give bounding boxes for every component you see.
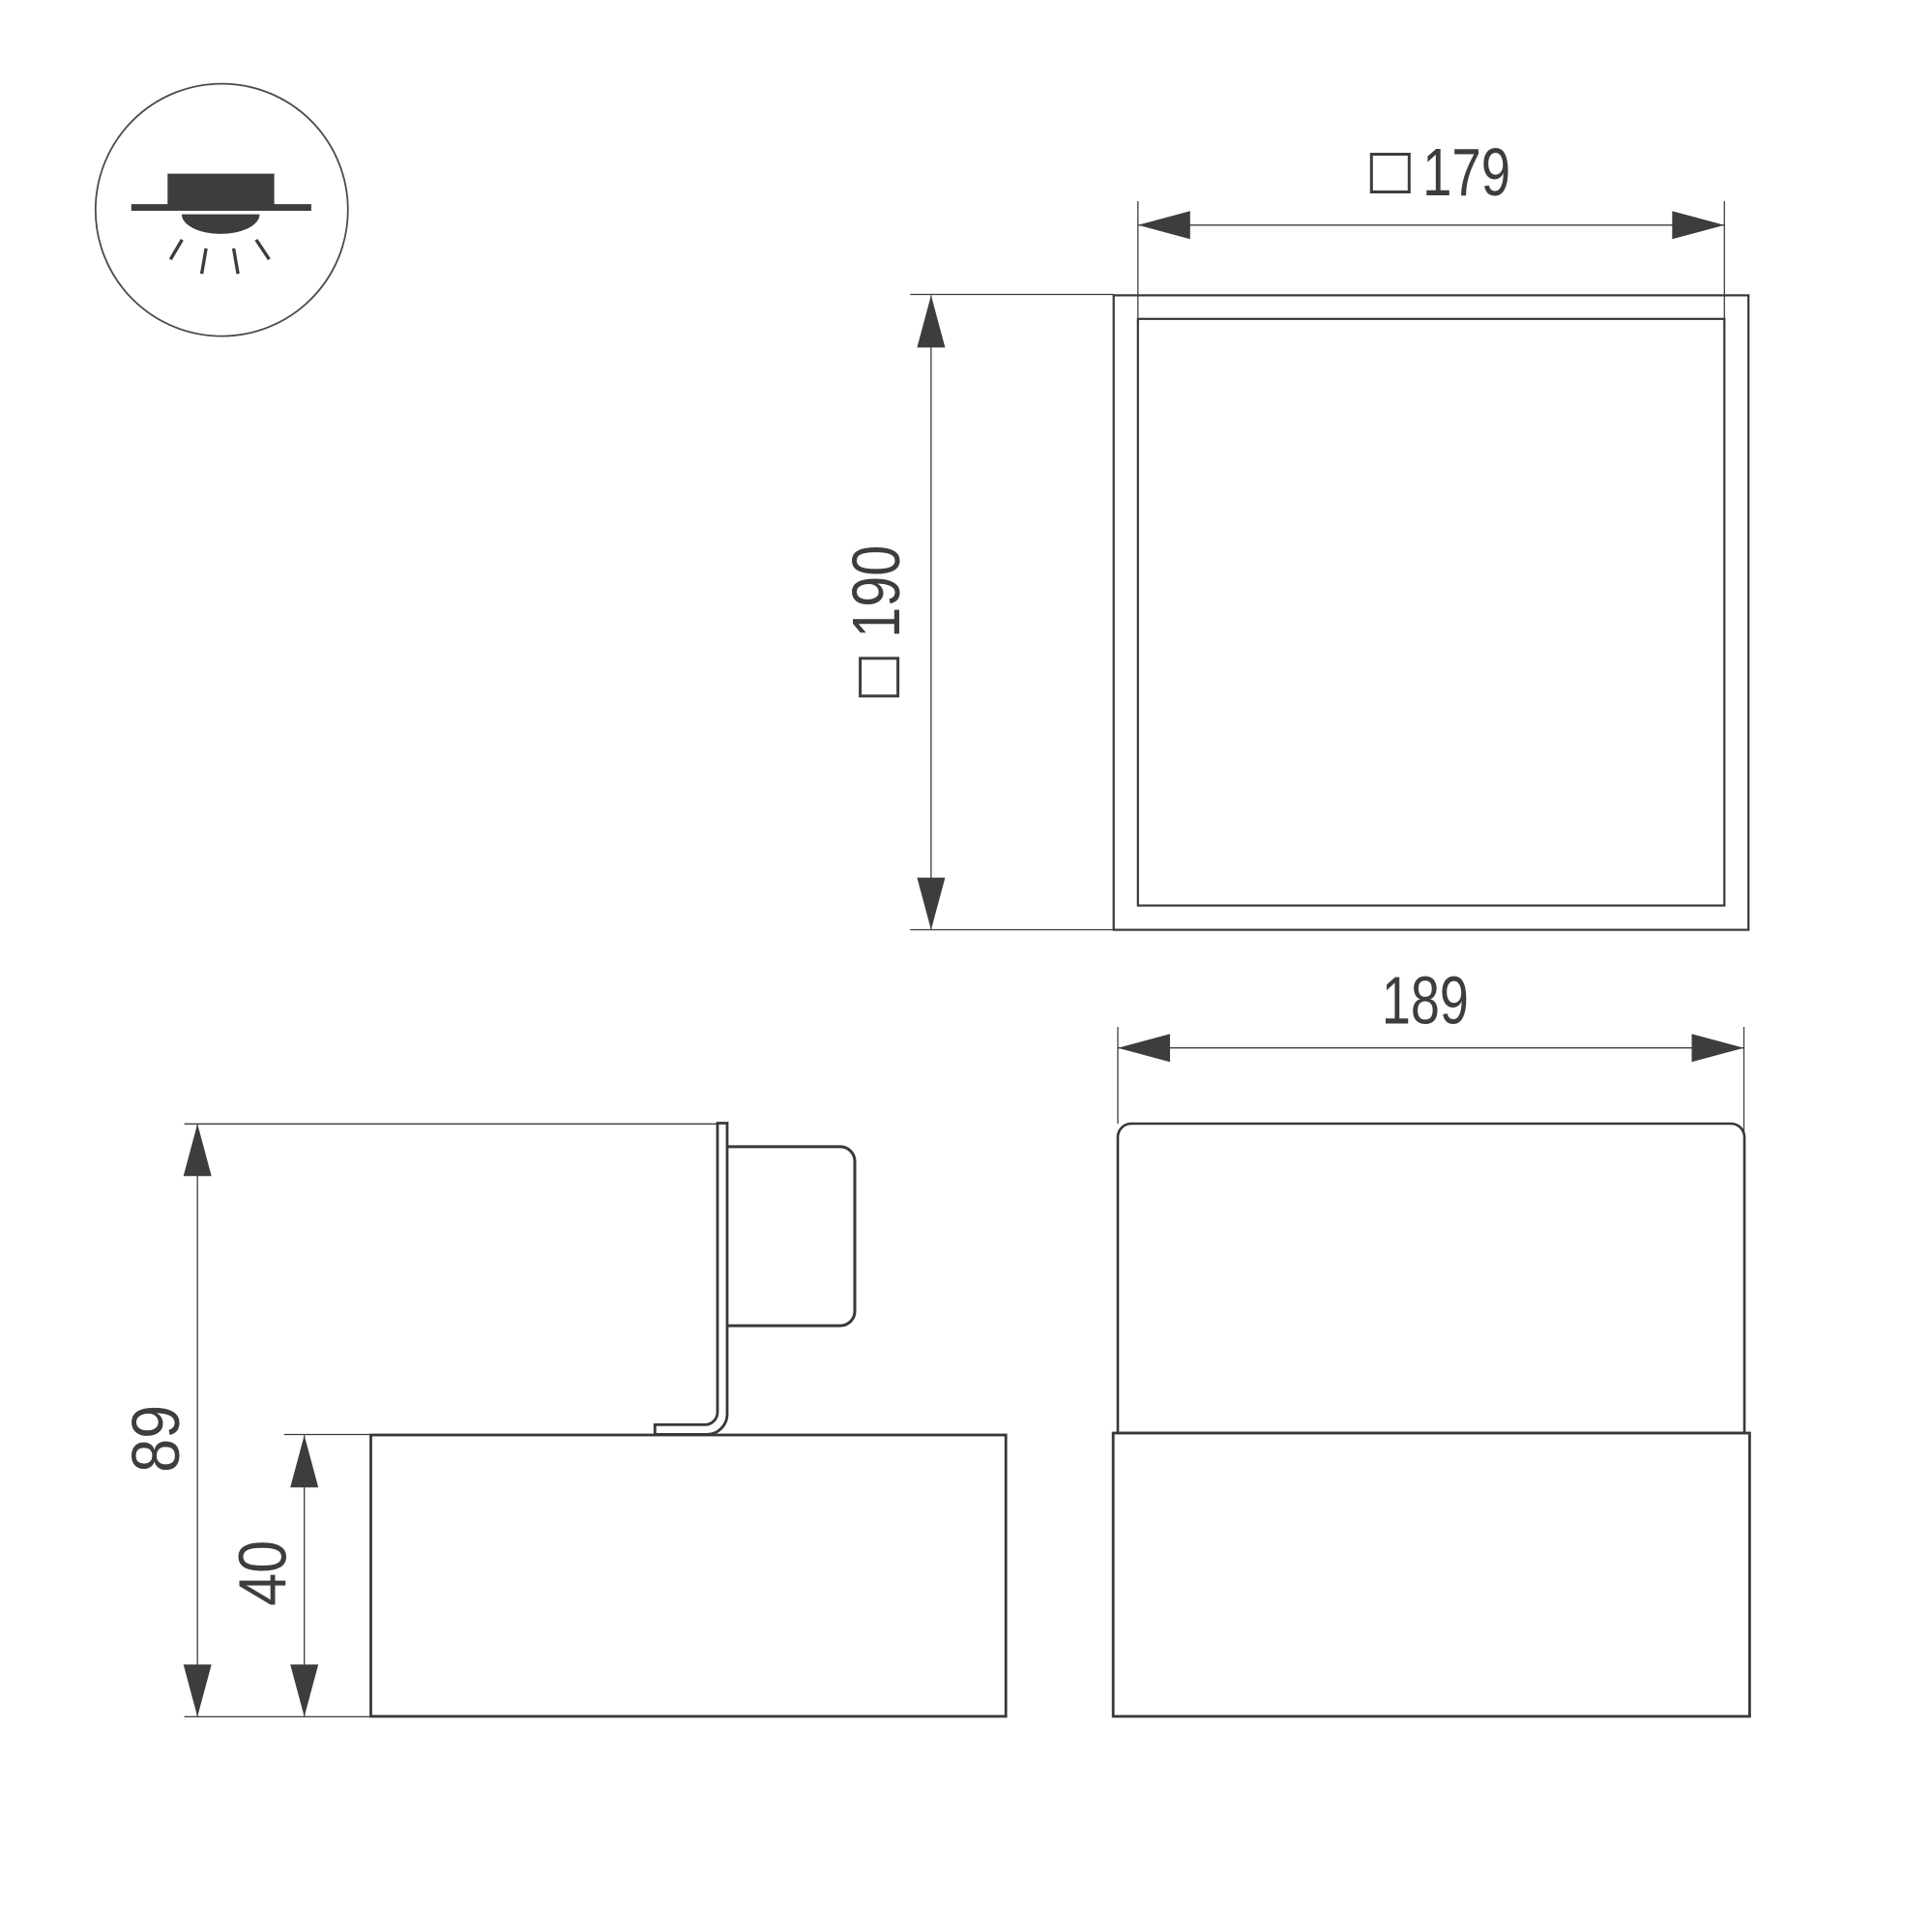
svg-text:89: 89 — [118, 1405, 193, 1473]
svg-text:40: 40 — [225, 1540, 301, 1606]
svg-text:189: 189 — [1382, 962, 1469, 1038]
svg-text:190: 190 — [838, 545, 914, 638]
svg-text:179: 179 — [1422, 134, 1510, 210]
